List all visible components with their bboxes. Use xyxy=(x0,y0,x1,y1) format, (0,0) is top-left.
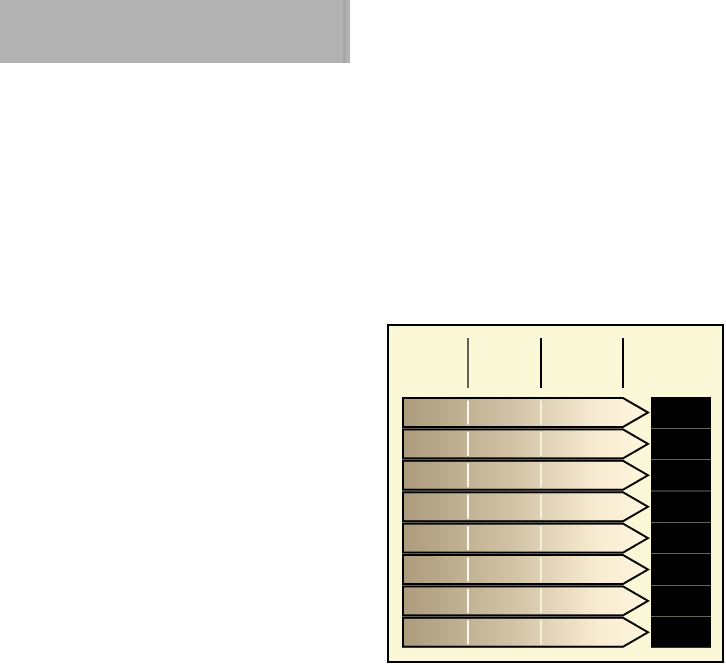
gradient-arrow-bar xyxy=(403,586,648,615)
redacted-label-block xyxy=(651,428,711,459)
redacted-label-block xyxy=(651,523,711,554)
redacted-label-block xyxy=(651,397,711,428)
arrow-figure-panel xyxy=(387,324,724,663)
arrow-diagram xyxy=(387,324,724,663)
page-canvas xyxy=(0,0,726,665)
header-edge-stripe xyxy=(343,0,346,63)
redacted-header-block xyxy=(0,0,350,63)
redacted-label-block xyxy=(651,585,711,616)
redacted-label-block xyxy=(651,460,711,491)
gradient-arrow-bar xyxy=(403,492,648,521)
gradient-arrow-bar xyxy=(403,524,648,553)
redacted-label-block xyxy=(651,554,711,585)
gradient-arrow-bar xyxy=(403,618,648,647)
redacted-label-block xyxy=(651,491,711,522)
gradient-arrow-bar xyxy=(403,461,648,490)
gradient-arrow-bar xyxy=(403,429,648,458)
gradient-arrow-bar xyxy=(403,555,648,584)
redacted-label-block xyxy=(651,617,711,648)
gradient-arrow-bar xyxy=(403,398,648,427)
